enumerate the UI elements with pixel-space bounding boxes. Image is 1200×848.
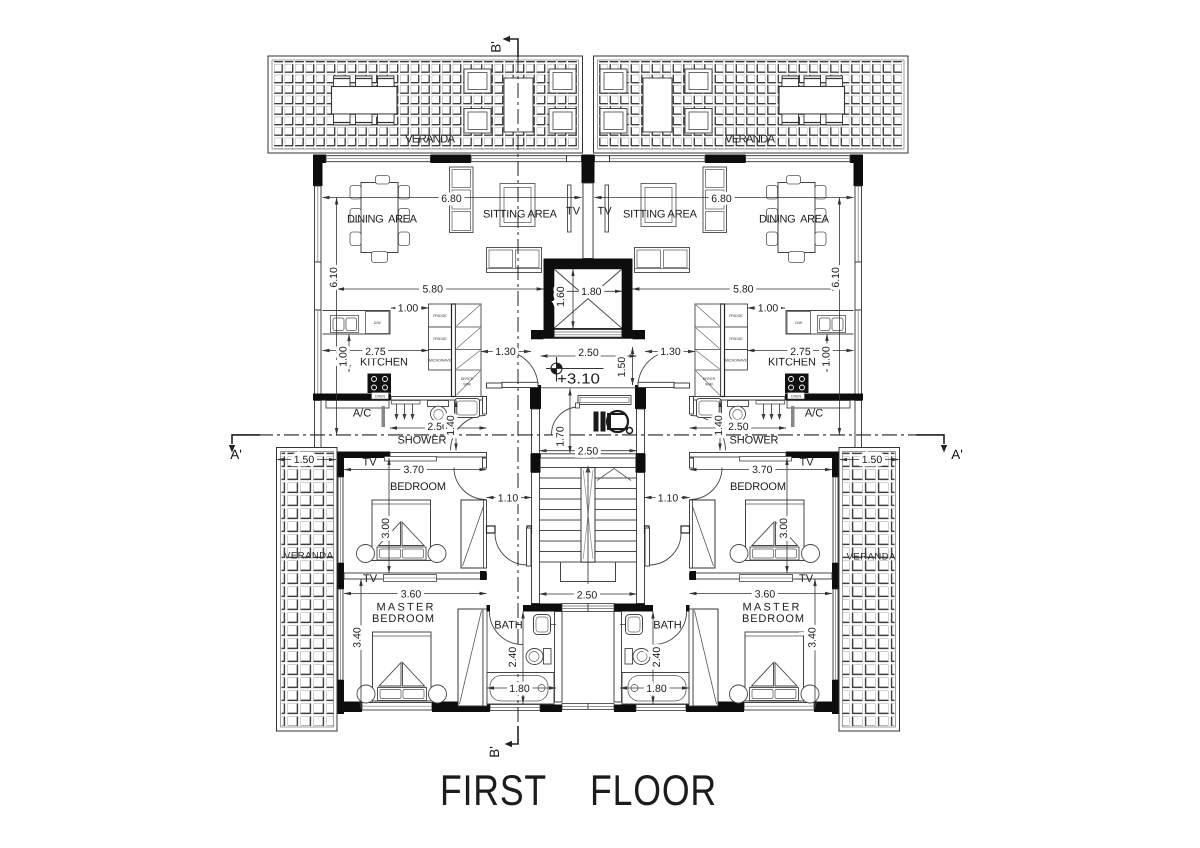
- svg-text:1.70: 1.70: [555, 426, 567, 447]
- svg-text:VERANDA: VERANDA: [725, 134, 775, 146]
- svg-text:MICROWAVE: MICROWAVE: [725, 359, 748, 363]
- svg-text:SHOWER: SHOWER: [730, 435, 779, 447]
- svg-text:6.10: 6.10: [328, 267, 340, 288]
- svg-text:TV: TV: [363, 573, 378, 585]
- svg-text:FIRST: FIRST: [440, 767, 547, 815]
- svg-text:2.50: 2.50: [728, 421, 749, 433]
- svg-text:3.60: 3.60: [401, 588, 422, 600]
- svg-text:OVEN: OVEN: [791, 395, 802, 399]
- svg-text:VERANDA: VERANDA: [284, 551, 334, 562]
- svg-text:BATH: BATH: [653, 620, 682, 632]
- svg-text:KITCHEN: KITCHEN: [768, 357, 816, 369]
- svg-text:FLOOR: FLOOR: [590, 767, 717, 815]
- svg-text:1.00: 1.00: [398, 303, 419, 315]
- svg-text:1.30: 1.30: [660, 346, 681, 358]
- svg-text:1.10: 1.10: [658, 492, 679, 504]
- svg-text:1.50: 1.50: [616, 357, 628, 378]
- svg-text:TV: TV: [799, 573, 814, 585]
- svg-text:3.00: 3.00: [778, 518, 790, 539]
- svg-text:A': A': [951, 447, 963, 462]
- svg-text:KITCHEN: KITCHEN: [360, 357, 408, 369]
- svg-text:FRIDGE: FRIDGE: [433, 337, 447, 341]
- svg-text:VERANDA: VERANDA: [847, 552, 897, 563]
- svg-text:B': B': [487, 746, 502, 758]
- svg-text:BEDROOM: BEDROOM: [742, 613, 804, 625]
- svg-text:1.50: 1.50: [862, 454, 883, 466]
- svg-text:2.40: 2.40: [507, 647, 519, 668]
- svg-text:DINING AREA: DINING AREA: [347, 214, 418, 226]
- svg-text:2.50: 2.50: [577, 589, 598, 601]
- svg-text:D/W: D/W: [374, 321, 382, 325]
- svg-text:1.00: 1.00: [758, 303, 779, 315]
- svg-text:1.40: 1.40: [445, 415, 457, 436]
- svg-text:2.50: 2.50: [578, 446, 599, 458]
- svg-text:2.75: 2.75: [790, 346, 811, 358]
- svg-text:1.80: 1.80: [581, 286, 602, 298]
- svg-text:FRIDGE: FRIDGE: [729, 314, 743, 318]
- svg-text:6.80: 6.80: [711, 193, 732, 205]
- svg-text:B': B': [489, 41, 504, 53]
- svg-text:A/C: A/C: [805, 408, 823, 420]
- svg-text:1.30: 1.30: [495, 346, 516, 358]
- svg-text:2.50: 2.50: [578, 347, 599, 359]
- svg-text:D/W: D/W: [795, 321, 803, 325]
- svg-text:3.00: 3.00: [380, 518, 392, 539]
- svg-text:SHOWER: SHOWER: [398, 435, 447, 447]
- svg-text:3.40: 3.40: [352, 627, 364, 648]
- svg-text:OVEN: OVEN: [375, 395, 386, 399]
- svg-text:BEDROOM: BEDROOM: [372, 613, 434, 625]
- svg-text:A': A': [230, 447, 242, 462]
- svg-text:3.60: 3.60: [755, 588, 776, 600]
- svg-text:1.80: 1.80: [646, 683, 667, 695]
- svg-text:6.80: 6.80: [441, 193, 462, 205]
- svg-text:TV: TV: [566, 206, 581, 218]
- svg-text:1.80: 1.80: [509, 683, 530, 695]
- svg-text:DINING AREA: DINING AREA: [759, 214, 830, 226]
- svg-text:DRYER: DRYER: [461, 377, 474, 381]
- svg-text:FRIDGE: FRIDGE: [433, 314, 447, 318]
- svg-text:FRIDGE: FRIDGE: [729, 337, 743, 341]
- svg-text:5.80: 5.80: [422, 284, 443, 296]
- svg-text:3.70: 3.70: [403, 464, 424, 476]
- svg-text:6.10: 6.10: [830, 267, 842, 288]
- svg-text:1.50: 1.50: [294, 454, 315, 466]
- svg-text:1.00: 1.00: [821, 346, 833, 367]
- svg-text:SITTING AREA: SITTING AREA: [623, 209, 698, 221]
- svg-text:DRYER: DRYER: [703, 377, 716, 381]
- svg-text:1.40: 1.40: [713, 415, 725, 436]
- svg-text:A/C: A/C: [353, 408, 371, 420]
- svg-text:3.40: 3.40: [806, 627, 818, 648]
- svg-text:VERANDA: VERANDA: [405, 134, 455, 146]
- svg-text:2.75: 2.75: [365, 346, 386, 358]
- svg-text:2.40: 2.40: [651, 647, 663, 668]
- svg-text:5.80: 5.80: [733, 284, 754, 296]
- svg-text:TV: TV: [597, 206, 612, 218]
- svg-text:BEDROOM: BEDROOM: [730, 481, 786, 493]
- svg-text:1.60: 1.60: [555, 286, 567, 307]
- svg-text:BEDROOM: BEDROOM: [390, 481, 446, 493]
- svg-text:1.00: 1.00: [338, 346, 350, 367]
- svg-text:TV: TV: [362, 457, 377, 469]
- svg-text:W/M: W/M: [463, 383, 470, 387]
- svg-text:SITTING AREA: SITTING AREA: [483, 209, 558, 221]
- svg-text:BATH: BATH: [494, 620, 523, 632]
- svg-text:+3.10: +3.10: [557, 371, 600, 387]
- svg-text:W/M: W/M: [705, 383, 712, 387]
- svg-text:TV: TV: [799, 457, 814, 469]
- svg-text:3.70: 3.70: [752, 464, 773, 476]
- svg-text:1.10: 1.10: [498, 492, 519, 504]
- svg-text:MICROWAVE: MICROWAVE: [429, 359, 452, 363]
